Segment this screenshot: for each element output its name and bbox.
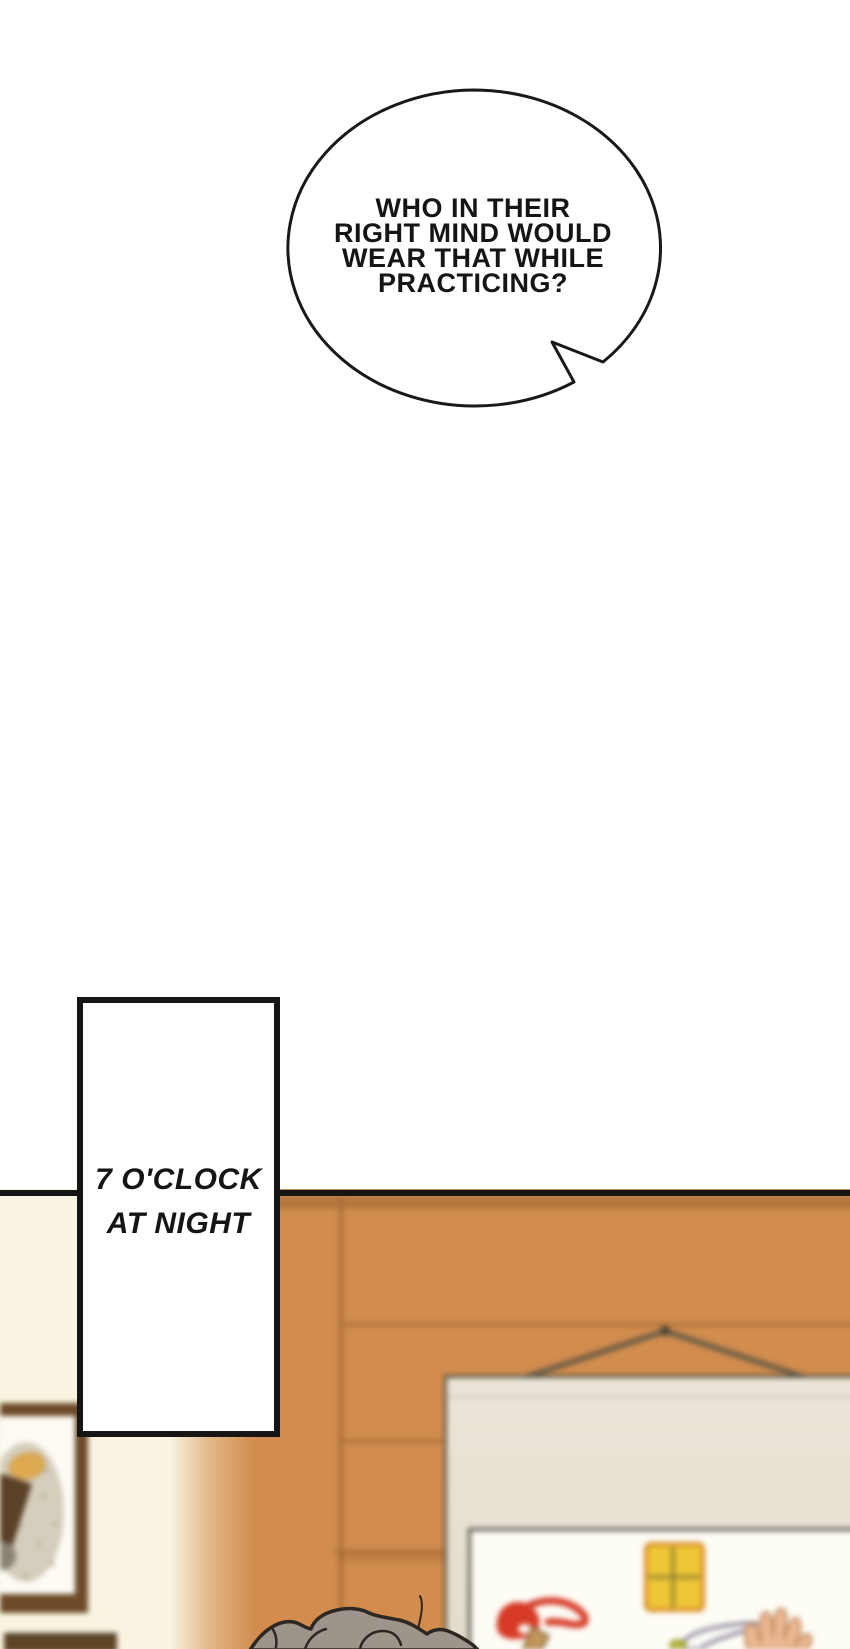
comic-page: WHO IN THEIR RIGHT MIND WOULD WEAR THAT … — [0, 0, 850, 1649]
drawing-wing — [670, 1623, 757, 1649]
character-hair — [235, 1585, 490, 1649]
drawing-hand — [745, 1609, 811, 1649]
speech-bubble-text: WHO IN THEIR RIGHT MIND WOULD WEAR THAT … — [312, 196, 634, 296]
hair-silhouette — [250, 1609, 478, 1649]
caption-text: 7 O'CLOCK AT NIGHT — [83, 1158, 274, 1246]
caption-line: AT NIGHT — [83, 1202, 274, 1246]
speech-line: PRACTICING? — [312, 271, 634, 296]
drawing-window — [646, 1544, 703, 1610]
picture-frame — [0, 1403, 88, 1613]
caption-line: 7 O'CLOCK — [83, 1158, 274, 1202]
second-frame-top-edge — [4, 1633, 117, 1649]
frame-artwork — [0, 1416, 75, 1594]
caption-box: 7 O'CLOCK AT NIGHT — [77, 997, 280, 1437]
